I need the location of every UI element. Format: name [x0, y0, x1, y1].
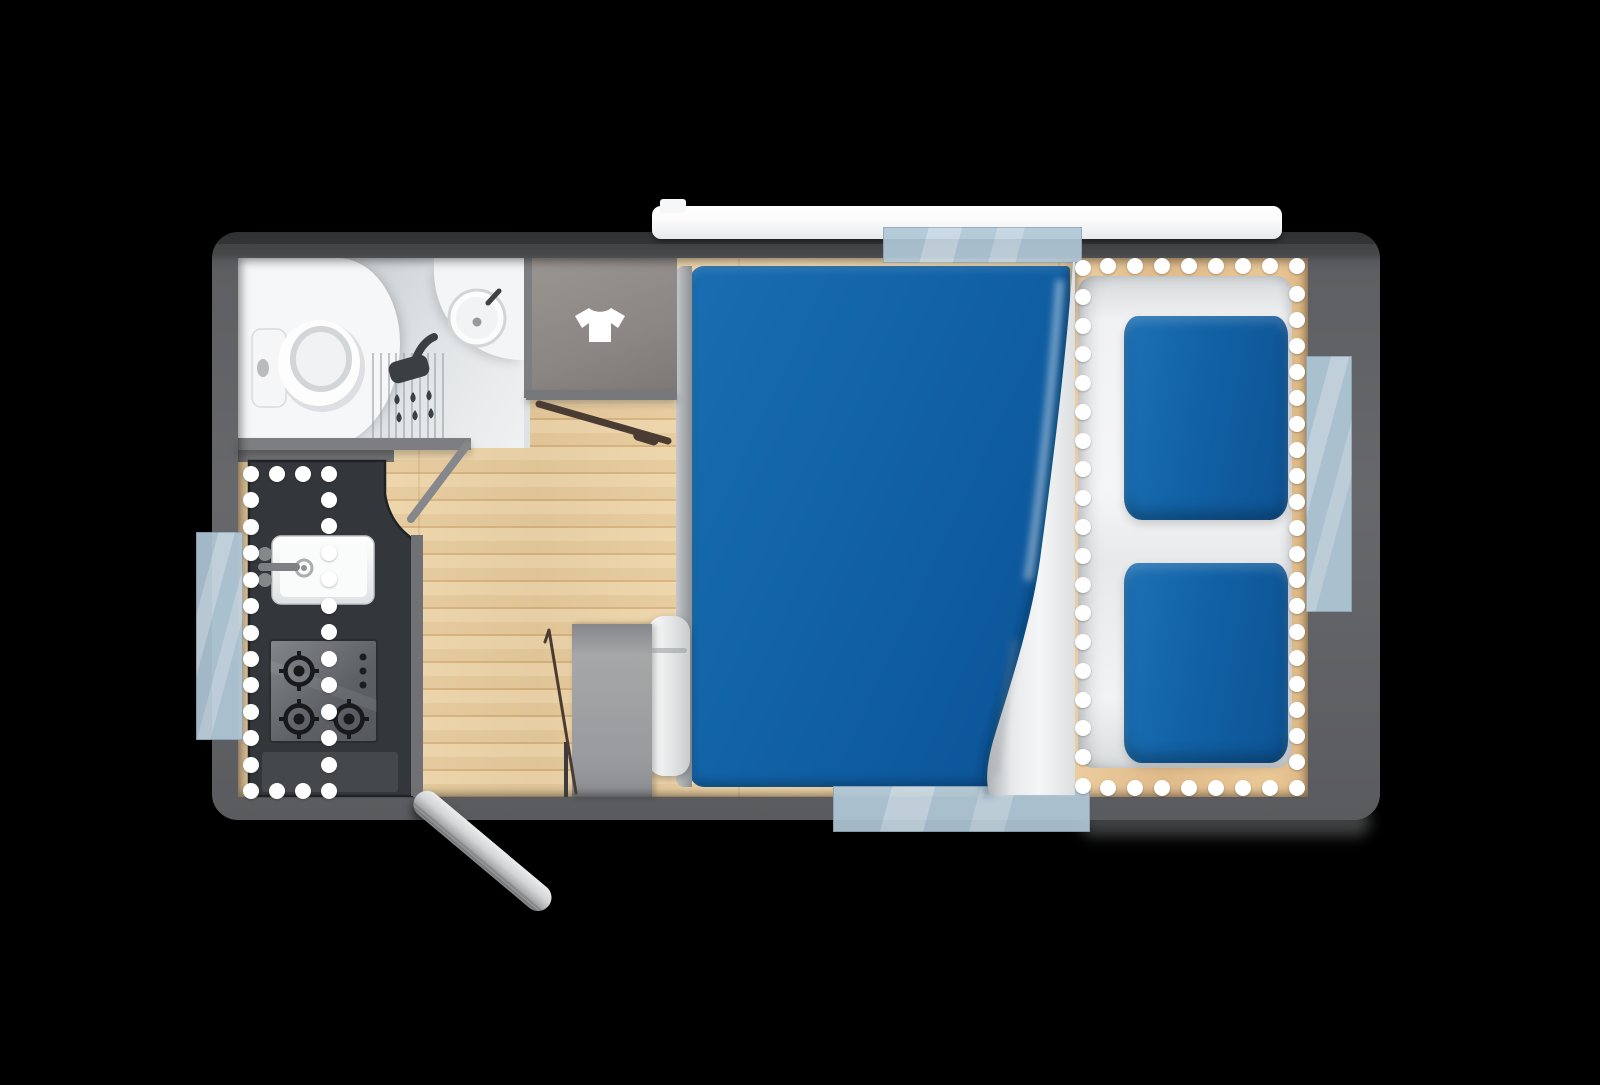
led-dot [1181, 258, 1197, 274]
led-dot [1235, 258, 1251, 274]
led-dot [1235, 780, 1251, 796]
bedside-cabinet [572, 624, 652, 797]
led-dot [321, 757, 337, 773]
led-dot [243, 651, 259, 667]
led-dot [243, 598, 259, 614]
led-dot [1075, 375, 1091, 391]
shower-stripe [395, 353, 397, 438]
shower-stripe [411, 353, 413, 438]
led-dot [1262, 780, 1278, 796]
led-dot [1289, 286, 1305, 302]
led-dot [1289, 780, 1305, 796]
led-dot [1289, 494, 1305, 510]
led-dot [1289, 754, 1305, 770]
led-dot [321, 783, 337, 799]
shower-stripe [372, 353, 374, 438]
bathroom-wall [524, 258, 532, 398]
led-dot [321, 704, 337, 720]
led-dot [1127, 780, 1143, 796]
led-dot [243, 466, 259, 482]
led-dot [243, 625, 259, 641]
led-dot [1075, 260, 1091, 276]
wardrobe [530, 258, 677, 397]
led-dot [1075, 548, 1091, 564]
led-dot [321, 730, 337, 746]
led-dot [295, 783, 311, 799]
shower-stripe [388, 353, 390, 438]
led-dot [1100, 258, 1116, 274]
led-dot [1289, 520, 1305, 536]
led-dot [1289, 676, 1305, 692]
led-dot [1289, 338, 1305, 354]
led-dot [1289, 312, 1305, 328]
window-left [196, 532, 243, 740]
led-dot [243, 704, 259, 720]
window-right [1306, 356, 1352, 612]
bed-pillow [648, 616, 690, 776]
shower-stripe [403, 353, 405, 438]
led-dot [1127, 258, 1143, 274]
led-dot [321, 598, 337, 614]
led-dot [1289, 390, 1305, 406]
led-dot [295, 466, 311, 482]
led-dot [1075, 634, 1091, 650]
led-dot [243, 757, 259, 773]
caravan-floor-plan [0, 0, 1600, 1085]
led-dot [1154, 258, 1170, 274]
led-dot [321, 466, 337, 482]
roof-strip-tab [660, 199, 686, 213]
led-dot [1289, 598, 1305, 614]
lounge-cushion [1124, 316, 1288, 520]
led-dot [1289, 416, 1305, 432]
led-dot [1100, 780, 1116, 796]
led-dot [1075, 289, 1091, 305]
led-dot [1289, 258, 1305, 274]
kitchen-wall [238, 450, 394, 462]
shower-stripe [380, 353, 382, 438]
led-dot [1075, 778, 1091, 794]
shower-stripe [434, 353, 436, 438]
led-dot [1289, 364, 1305, 380]
led-dot [1181, 780, 1197, 796]
led-dot [1289, 728, 1305, 744]
led-dot [243, 572, 259, 588]
led-dot [1075, 577, 1091, 593]
led-dot [1208, 780, 1224, 796]
wardrobe-wall [526, 390, 677, 400]
led-dot [1289, 624, 1305, 640]
led-dot [269, 466, 285, 482]
led-dot [1075, 433, 1091, 449]
bed-pillow-crease [651, 648, 687, 653]
window-top [883, 227, 1082, 263]
led-dot [1289, 468, 1305, 484]
led-dot [269, 783, 285, 799]
led-dot [1075, 519, 1091, 535]
led-dot [1289, 702, 1305, 718]
shower-stripe [442, 353, 444, 438]
bathroom-wall [238, 438, 471, 450]
led-dot [321, 545, 337, 561]
led-dot [1289, 572, 1305, 588]
led-dot [1289, 442, 1305, 458]
led-dot [1075, 692, 1091, 708]
led-dot [321, 492, 337, 508]
led-dot [1289, 650, 1305, 666]
led-dot [1262, 258, 1278, 274]
led-dot [1289, 546, 1305, 562]
led-dot [1208, 258, 1224, 274]
shower-stripe [419, 353, 421, 438]
led-dot [321, 651, 337, 667]
led-dot [1075, 404, 1091, 420]
led-dot [1075, 318, 1091, 334]
led-dot [243, 519, 259, 535]
bathroom [238, 258, 530, 448]
window-bottom [833, 786, 1090, 832]
shower-stripe [427, 353, 429, 438]
lounge-cushion [1124, 563, 1288, 763]
led-dot [1154, 780, 1170, 796]
double-bed [690, 266, 1070, 787]
led-dot [243, 783, 259, 799]
led-dot [1075, 663, 1091, 679]
